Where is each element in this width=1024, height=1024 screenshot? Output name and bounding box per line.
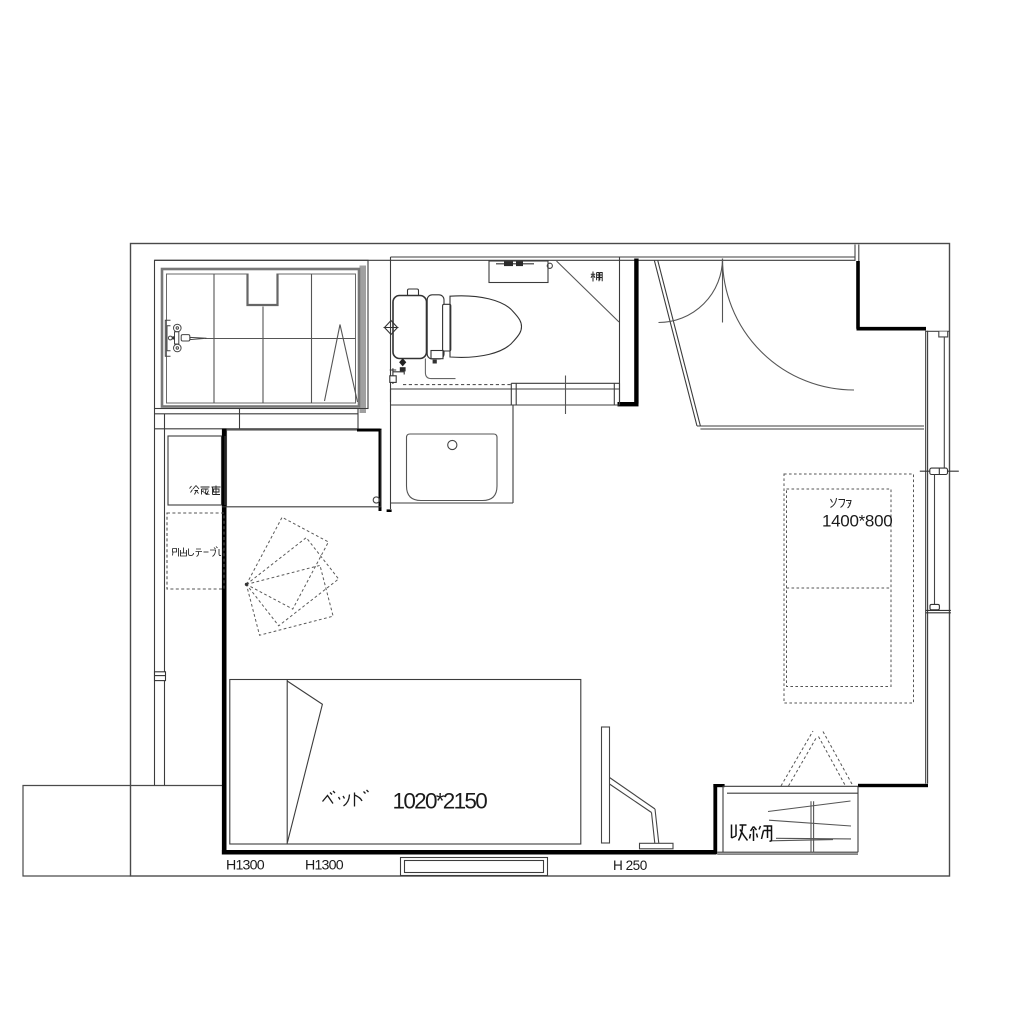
svg-text:1400*800: 1400*800 [822,512,892,531]
svg-text:1020*2150: 1020*2150 [393,789,488,814]
svg-text:H1300: H1300 [226,858,265,874]
svg-text:H1300: H1300 [305,858,344,874]
svg-text:H 250: H 250 [613,858,648,873]
